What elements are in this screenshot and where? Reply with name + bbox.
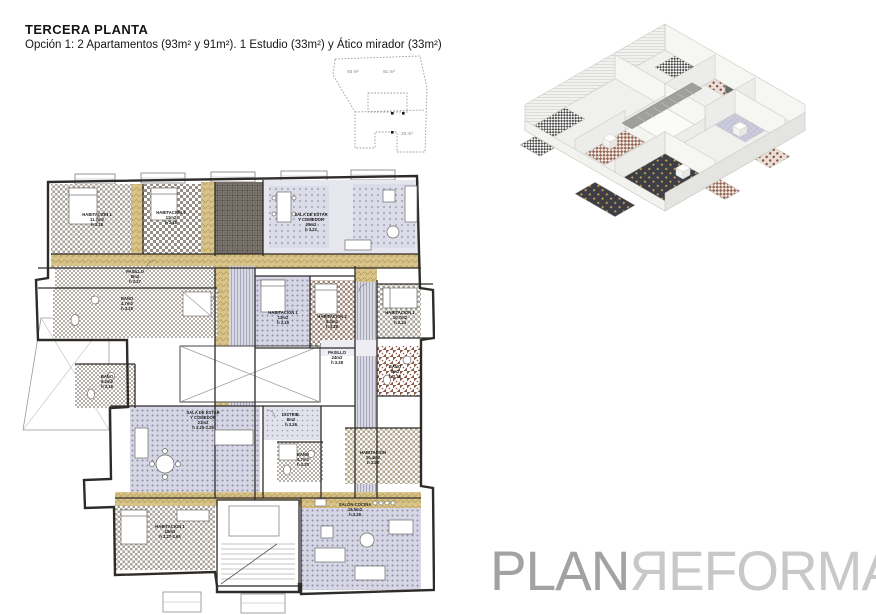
logo-reforma-text: ЯEFORMA bbox=[629, 539, 876, 602]
room-label: BAÑO4.7m2h 3.18 bbox=[121, 296, 134, 311]
axonometric-3d-view bbox=[505, 12, 815, 267]
floor-bedroom-bottomright bbox=[345, 428, 421, 484]
room-label: BAÑO6.2m2h 3.18 bbox=[101, 374, 114, 389]
balconies-bottom bbox=[163, 592, 285, 613]
keyplan-courtyard bbox=[368, 93, 407, 112]
page-subtitle: Opción 1: 2 Apartamentos (93m² y 91m²). … bbox=[25, 39, 442, 51]
planreforma-logo: PLANЯEFORMA bbox=[490, 543, 876, 599]
keyplan-area-right: 91 m² bbox=[383, 69, 395, 74]
title-block: TERCERA PLANTA Opción 1: 2 Apartamentos … bbox=[25, 22, 442, 51]
keyplan-area-left: 93 m² bbox=[347, 69, 359, 74]
svg-text:h 3.24: h 3.24 bbox=[394, 320, 407, 325]
svg-text:h 3.27: h 3.27 bbox=[129, 279, 142, 284]
floor-tan-band-top bbox=[51, 254, 419, 268]
svg-text:h 3.28: h 3.28 bbox=[331, 360, 344, 365]
svg-text:h 3.18: h 3.18 bbox=[91, 222, 104, 227]
axon-floors bbox=[525, 50, 805, 211]
svg-text:h 3.19: h 3.19 bbox=[277, 320, 290, 325]
key-plan-diagram: 93 m² 91 m² 33 m² bbox=[325, 52, 440, 160]
svg-text:h 3.28: h 3.28 bbox=[367, 460, 380, 465]
svg-text:h 3.27-2.65: h 3.27-2.65 bbox=[159, 534, 181, 539]
keyplan-area-bottom: 33 m² bbox=[401, 131, 413, 136]
stairwell bbox=[217, 500, 299, 586]
svg-text:h 3.22: h 3.22 bbox=[305, 227, 318, 232]
svg-text:h 3.18: h 3.18 bbox=[165, 220, 178, 225]
logo-plan-text: PLAN bbox=[490, 539, 629, 602]
svg-text:h 3.28: h 3.28 bbox=[389, 374, 402, 379]
page-title: TERCERA PLANTA bbox=[25, 22, 442, 37]
floor-dark-room bbox=[215, 182, 263, 254]
sheet: TERCERA PLANTA Opción 1: 2 Apartamentos … bbox=[0, 0, 876, 615]
svg-text:h 3.25-3.28: h 3.25-3.28 bbox=[192, 425, 214, 430]
svg-text:h 3.18: h 3.18 bbox=[121, 306, 134, 311]
courtyard bbox=[180, 346, 320, 402]
floor-plan: HABITACIÓN 111.7m2h 3.18 HABITACIÓN 211m… bbox=[15, 168, 435, 615]
svg-text:h 3.18: h 3.18 bbox=[101, 384, 114, 389]
room-label: BAÑO4.7m2h 3.28 bbox=[297, 452, 310, 467]
svg-text:h 3.28: h 3.28 bbox=[297, 462, 310, 467]
room-label: PASILLO24m2h 3.28 bbox=[328, 350, 347, 365]
svg-text:h 3.26: h 3.26 bbox=[285, 422, 298, 427]
svg-text:h 3.28: h 3.28 bbox=[326, 324, 339, 329]
svg-text:h 3.28: h 3.28 bbox=[349, 512, 362, 517]
